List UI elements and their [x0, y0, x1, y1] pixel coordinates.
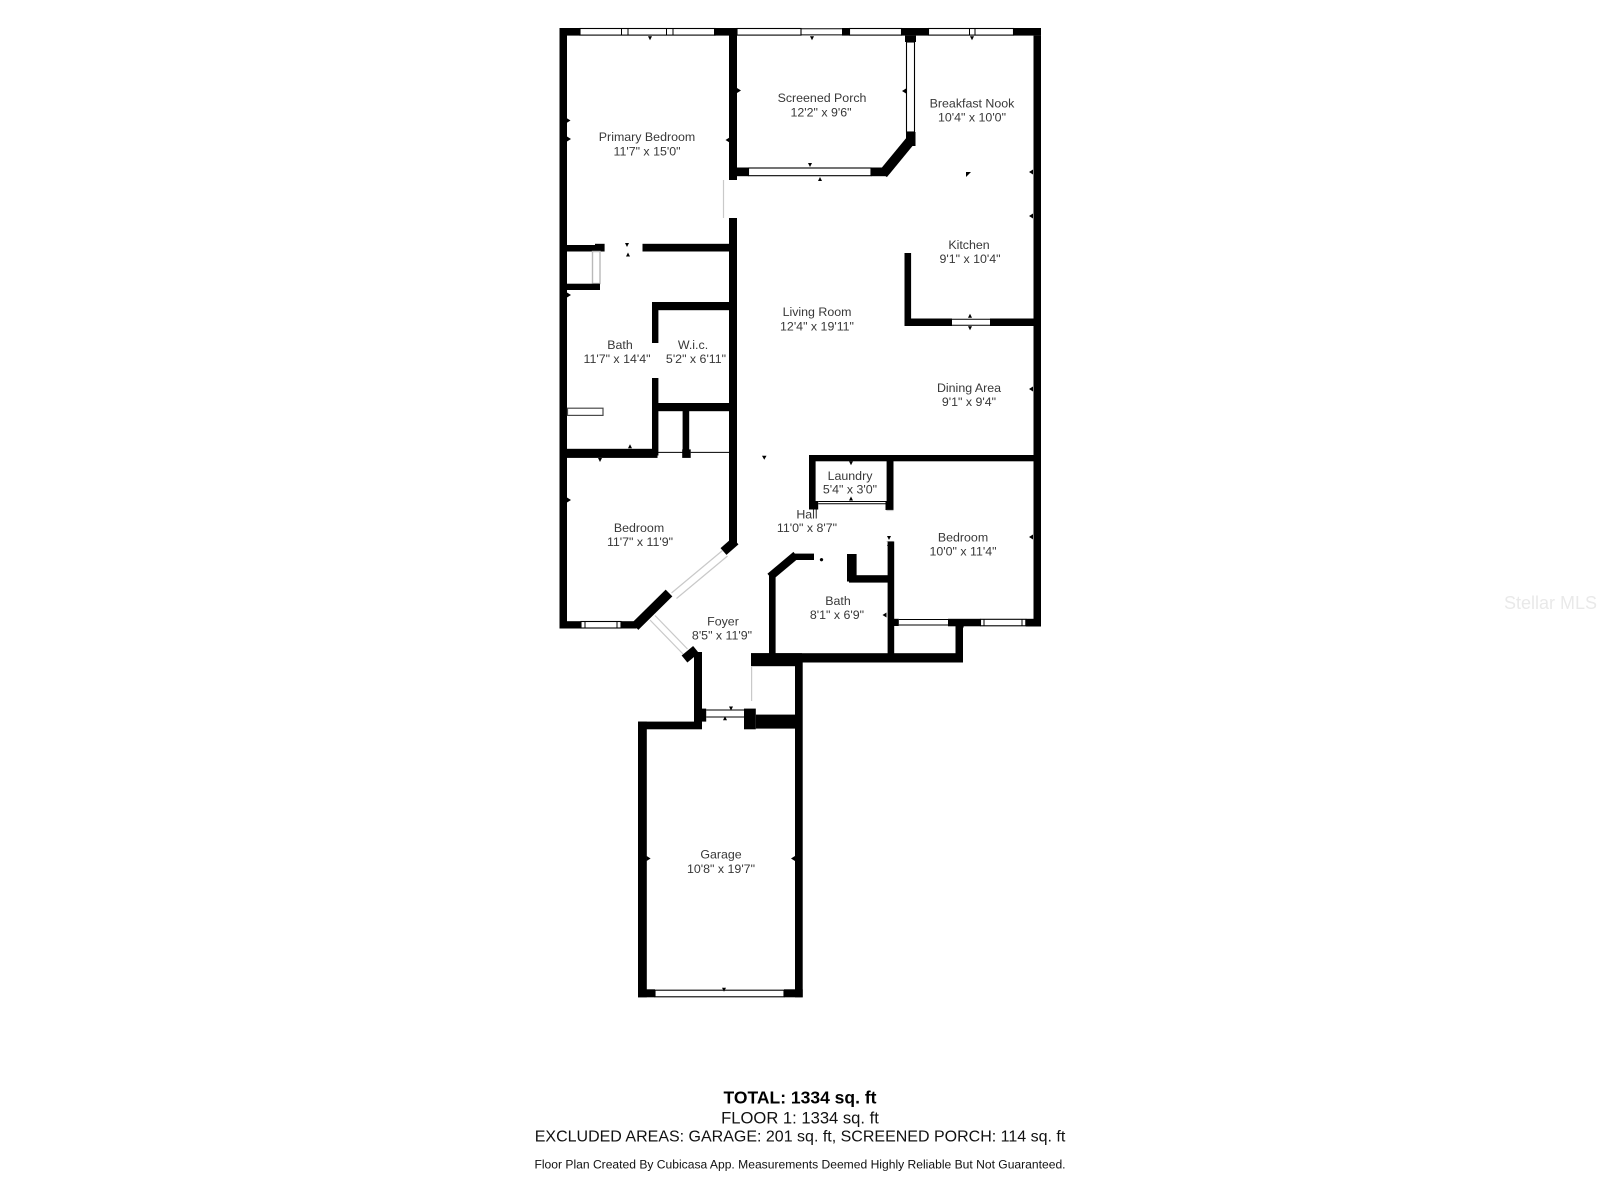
svg-text:11'0" x 8'7": 11'0" x 8'7": [777, 521, 837, 535]
svg-text:10'8" x 19'7": 10'8" x 19'7": [687, 862, 755, 876]
svg-text:Hall: Hall: [796, 508, 817, 522]
svg-text:8'5" x 11'9": 8'5" x 11'9": [692, 629, 752, 643]
svg-text:5'2" x 6'11": 5'2" x 6'11": [666, 352, 726, 366]
svg-text:11'7" x 14'4": 11'7" x 14'4": [583, 352, 650, 366]
svg-text:EXCLUDED AREAS: GARAGE: 201 sq: EXCLUDED AREAS: GARAGE: 201 sq. ft, SCRE…: [535, 1129, 1066, 1146]
svg-text:5'4" x 3'0": 5'4" x 3'0": [823, 483, 877, 497]
svg-text:Floor Plan Created By Cubicasa: Floor Plan Created By Cubicasa App. Meas…: [534, 1158, 1065, 1172]
svg-text:Foyer: Foyer: [707, 615, 739, 629]
svg-text:10'0" x 11'4": 10'0" x 11'4": [929, 545, 996, 559]
svg-text:Bath: Bath: [607, 338, 633, 352]
svg-text:10'4" x 10'0": 10'4" x 10'0": [938, 111, 1006, 125]
svg-text:Laundry: Laundry: [828, 469, 874, 483]
svg-text:Screened Porch: Screened Porch: [778, 91, 867, 105]
svg-text:12'2" x 9'6": 12'2" x 9'6": [790, 106, 851, 120]
svg-text:Breakfast Nook: Breakfast Nook: [930, 97, 1016, 111]
svg-text:11'7" x 11'9": 11'7" x 11'9": [607, 535, 673, 549]
svg-text:Bedroom: Bedroom: [938, 531, 988, 545]
svg-text:W.i.c.: W.i.c.: [678, 338, 708, 352]
svg-text:Dining Area: Dining Area: [937, 381, 1001, 395]
svg-text:Bedroom: Bedroom: [614, 521, 664, 535]
svg-text:11'7" x 15'0": 11'7" x 15'0": [613, 145, 680, 159]
svg-text:Stellar MLS: Stellar MLS: [1504, 593, 1597, 613]
svg-text:FLOOR 1: 1334 sq. ft: FLOOR 1: 1334 sq. ft: [721, 1109, 879, 1128]
svg-text:9'1" x 10'4": 9'1" x 10'4": [939, 252, 1000, 266]
svg-text:Bath: Bath: [825, 594, 851, 608]
svg-text:9'1" x 9'4": 9'1" x 9'4": [942, 395, 996, 409]
svg-text:12'4" x 19'11": 12'4" x 19'11": [780, 320, 854, 334]
svg-text:TOTAL: 1334 sq. ft: TOTAL: 1334 sq. ft: [724, 1088, 877, 1108]
svg-text:Primary Bedroom: Primary Bedroom: [599, 130, 695, 144]
svg-text:Living Room: Living Room: [783, 305, 852, 319]
svg-text:Garage: Garage: [700, 848, 741, 862]
svg-text:8'1" x 6'9": 8'1" x 6'9": [810, 608, 864, 622]
svg-text:Kitchen: Kitchen: [948, 238, 989, 252]
